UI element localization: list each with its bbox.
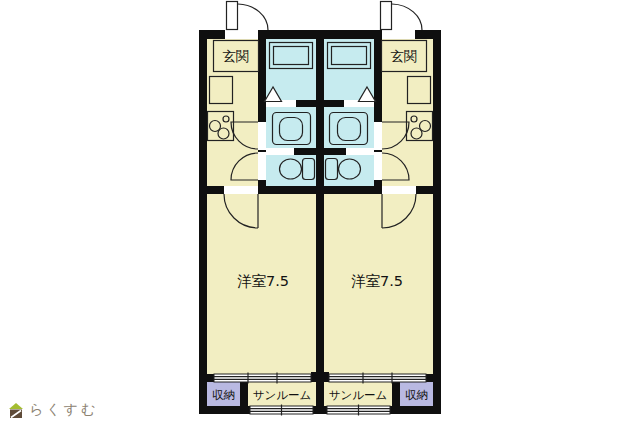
room-label-left: 洋室7.5 (237, 273, 289, 289)
storage-label-right: 収納 (405, 388, 428, 402)
house-icon (8, 402, 24, 419)
entrance-label-left: 玄関 (223, 48, 250, 64)
entrance-label-right: 玄関 (391, 48, 418, 64)
storage-label-left: 収納 (212, 388, 235, 402)
unit-left-geometry (199, 30, 320, 416)
logo-rakusumu: らくすむ (8, 401, 98, 419)
room-label-right: 洋室7.5 (351, 273, 403, 289)
unit-right-geometry (320, 30, 441, 416)
floorplan-drawing: 玄関 玄関 洋室7.5 洋室7.5 収納 収納 サンルーム サンルーム (0, 0, 640, 425)
sunroom-label-left: サンルーム (253, 388, 312, 402)
entrance-door-left (227, 2, 269, 31)
logo-text: らくすむ (29, 401, 98, 419)
entrance-door-right (381, 2, 423, 31)
floorplan-page: 玄関 玄関 洋室7.5 洋室7.5 収納 収納 サンルーム サンルーム らくすむ (0, 0, 640, 425)
sunroom-label-right: サンルーム (329, 388, 388, 402)
